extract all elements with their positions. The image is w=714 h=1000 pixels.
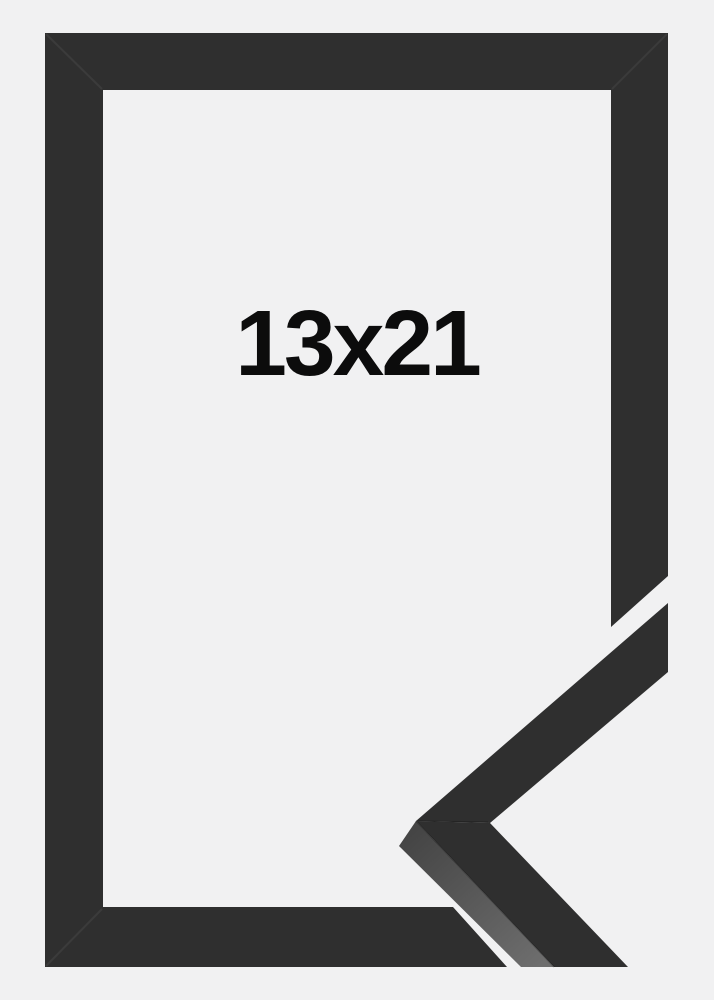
frame-illustration [0,0,714,1000]
frame-product-photo: 13x21 [0,0,714,1000]
photo-background [0,0,714,1000]
size-label: 13x21 [235,290,479,397]
